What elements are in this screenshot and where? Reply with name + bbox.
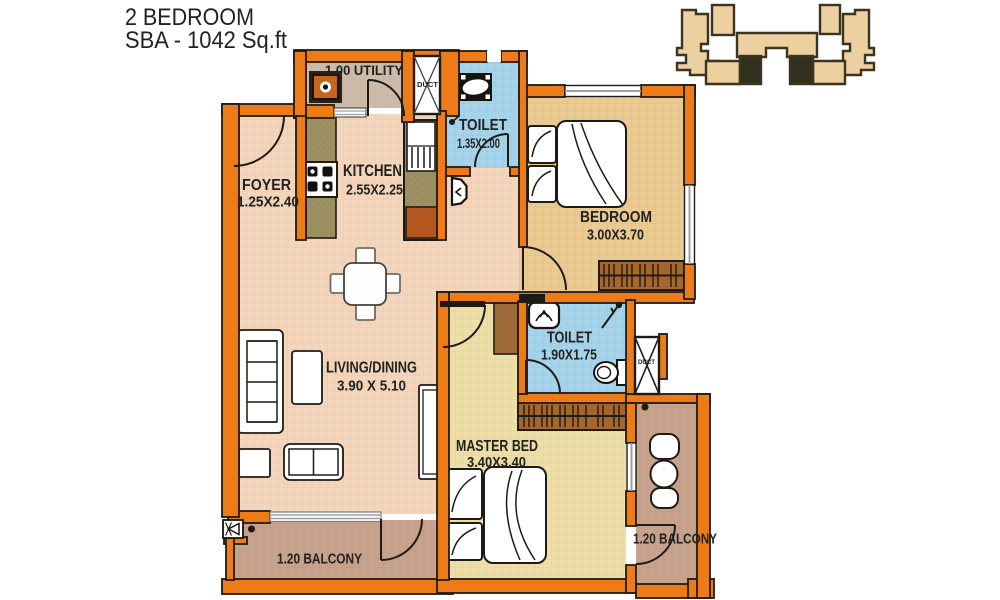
svg-text:FOYER: FOYER xyxy=(242,177,291,194)
svg-text:3.40X3.40: 3.40X3.40 xyxy=(467,455,526,471)
svg-text:1.35X2.00: 1.35X2.00 xyxy=(457,136,500,151)
svg-text:1.20 BALCONY: 1.20 BALCONY xyxy=(277,552,362,568)
svg-text:LIVING/DINING: LIVING/DINING xyxy=(326,360,417,377)
svg-text:DUCT: DUCT xyxy=(638,360,655,366)
svg-text:MASTER BED: MASTER BED xyxy=(456,438,538,455)
svg-text:1.90X1.75: 1.90X1.75 xyxy=(541,348,597,364)
svg-text:1.00 UTILITY: 1.00 UTILITY xyxy=(325,62,404,78)
svg-text:BEDROOM: BEDROOM xyxy=(580,209,652,226)
svg-text:1.25X2.40: 1.25X2.40 xyxy=(237,195,299,211)
svg-text:SBA - 1042 Sq.ft: SBA - 1042 Sq.ft xyxy=(125,27,287,54)
svg-text:2.55X2.25: 2.55X2.25 xyxy=(346,183,403,199)
svg-text:1.20 BALCONY: 1.20 BALCONY xyxy=(633,532,717,548)
svg-text:3.90 X 5.10: 3.90 X 5.10 xyxy=(337,379,406,395)
svg-text:DUCT: DUCT xyxy=(417,80,438,89)
svg-text:KITCHEN: KITCHEN xyxy=(343,162,402,180)
svg-text:3.00X3.70: 3.00X3.70 xyxy=(587,228,644,244)
svg-text:TOILET: TOILET xyxy=(547,330,592,347)
svg-text:TOILET: TOILET xyxy=(459,117,507,134)
